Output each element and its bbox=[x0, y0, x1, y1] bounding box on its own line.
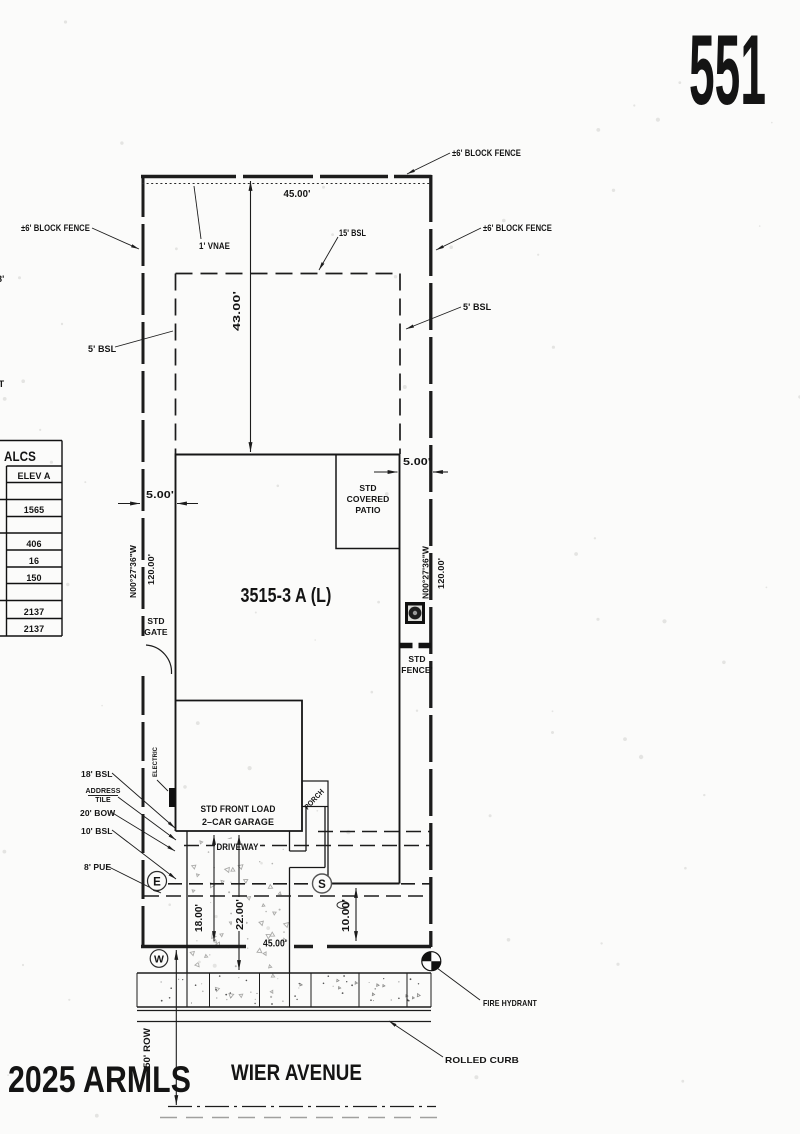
svg-text:±6' BLOCK FENCE: ±6' BLOCK FENCE bbox=[452, 148, 521, 158]
svg-text:PATIO: PATIO bbox=[355, 505, 380, 515]
svg-text:10' BSL: 10' BSL bbox=[81, 826, 113, 836]
svg-text:ADDRESS: ADDRESS bbox=[86, 788, 121, 795]
svg-text:1565: 1565 bbox=[24, 505, 44, 515]
svg-text:8': 8' bbox=[0, 274, 4, 284]
svg-text:FENCE': FENCE' bbox=[401, 665, 432, 675]
svg-text:150: 150 bbox=[26, 573, 41, 583]
svg-text:43.00': 43.00' bbox=[231, 291, 243, 331]
svg-text:ELECTRIC: ELECTRIC bbox=[152, 747, 159, 777]
svg-text:N00°27'36"W: N00°27'36"W bbox=[128, 545, 138, 598]
svg-text:8' PUE: 8' PUE bbox=[84, 862, 111, 872]
svg-text:3515-3 A (L): 3515-3 A (L) bbox=[241, 584, 332, 607]
svg-text:ALCS: ALCS bbox=[4, 449, 36, 464]
svg-text:±6' BLOCK FENCE: ±6' BLOCK FENCE bbox=[483, 223, 552, 233]
svg-text:2137: 2137 bbox=[24, 607, 44, 617]
svg-text:STD FRONT LOAD: STD FRONT LOAD bbox=[201, 804, 276, 815]
svg-text:E: E bbox=[153, 877, 161, 889]
svg-text:STD: STD bbox=[359, 483, 376, 493]
svg-text:2025 ARMLS: 2025 ARMLS bbox=[8, 1059, 191, 1100]
svg-text:STD: STD bbox=[147, 616, 164, 626]
svg-text:15' BSL: 15' BSL bbox=[339, 228, 366, 238]
svg-text:WIER AVENUE: WIER AVENUE bbox=[231, 1060, 362, 1085]
svg-text:5.00': 5.00' bbox=[403, 457, 431, 468]
svg-text:45.00': 45.00' bbox=[263, 939, 287, 950]
svg-text:TILE: TILE bbox=[95, 797, 111, 804]
svg-text:N00°27'36"W: N00°27'36"W bbox=[421, 546, 431, 599]
svg-text:120.00': 120.00' bbox=[436, 558, 446, 589]
svg-text:18.00': 18.00' bbox=[194, 904, 205, 932]
svg-text:2137: 2137 bbox=[24, 624, 44, 634]
svg-text:22.00': 22.00' bbox=[235, 899, 246, 930]
svg-text:DRIVEWAY: DRIVEWAY bbox=[217, 842, 259, 853]
svg-text:406: 406 bbox=[26, 539, 41, 549]
svg-text:5.00': 5.00' bbox=[146, 490, 174, 501]
svg-text:45.00': 45.00' bbox=[284, 189, 311, 200]
svg-text:ROLLED CURB: ROLLED CURB bbox=[445, 1055, 519, 1065]
svg-text:551: 551 bbox=[689, 14, 766, 125]
svg-text:W: W bbox=[154, 954, 164, 966]
svg-text:FIRE HYDRANT: FIRE HYDRANT bbox=[483, 998, 538, 1008]
svg-text:20' BOW: 20' BOW bbox=[80, 808, 116, 818]
svg-text:S: S bbox=[318, 879, 326, 891]
svg-text:±6' BLOCK FENCE: ±6' BLOCK FENCE bbox=[21, 223, 90, 233]
svg-text:1' VNAE: 1' VNAE bbox=[199, 241, 230, 251]
svg-text:18' BSL: 18' BSL bbox=[81, 769, 113, 779]
svg-text:COVERED: COVERED bbox=[347, 494, 390, 504]
svg-text:5' BSL: 5' BSL bbox=[88, 344, 117, 354]
svg-text:.T: .T bbox=[0, 379, 5, 389]
svg-text:2–CAR GARAGE: 2–CAR GARAGE bbox=[202, 817, 274, 828]
svg-text:16: 16 bbox=[29, 556, 39, 566]
svg-text:ELEV A: ELEV A bbox=[18, 471, 51, 481]
svg-text:5' BSL: 5' BSL bbox=[463, 302, 492, 312]
svg-text:STD: STD bbox=[408, 654, 425, 664]
svg-text:10.00': 10.00' bbox=[341, 899, 352, 932]
svg-text:GATE: GATE bbox=[144, 627, 168, 637]
svg-text:120.00': 120.00' bbox=[146, 554, 156, 585]
